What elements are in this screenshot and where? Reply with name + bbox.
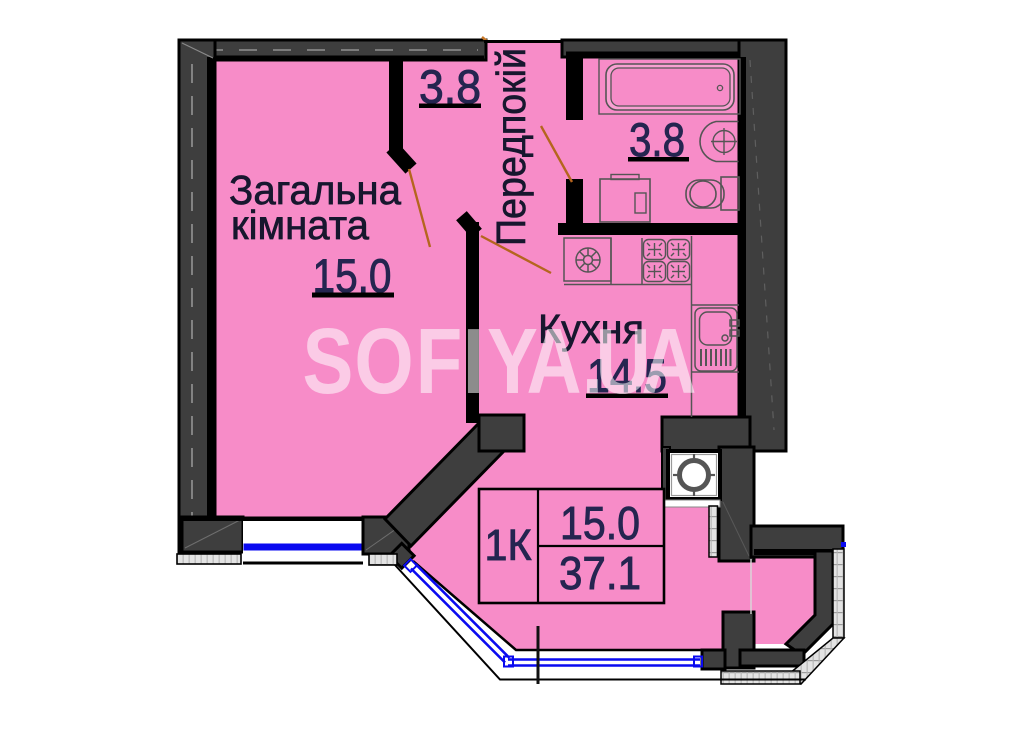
svg-text:1К: 1К [485, 521, 532, 570]
svg-text:кімната: кімната [231, 202, 369, 248]
svg-text:15.0: 15.0 [560, 497, 640, 549]
svg-text:Передпокій: Передпокій [488, 48, 534, 246]
svg-text:37.1: 37.1 [559, 547, 641, 599]
svg-text:SOFIYA.UA: SOFIYA.UA [303, 310, 697, 414]
